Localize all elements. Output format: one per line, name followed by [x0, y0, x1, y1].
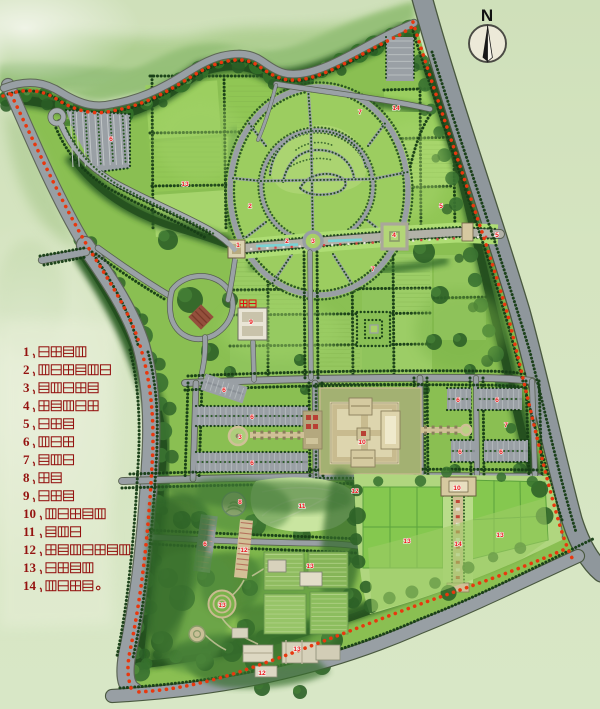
svg-text:13: 13 [403, 538, 411, 545]
svg-text:3: 3 [23, 380, 30, 395]
svg-text:4: 4 [23, 398, 30, 413]
svg-text:11: 11 [298, 503, 305, 510]
svg-text:6: 6 [499, 449, 503, 456]
svg-text:6: 6 [250, 414, 254, 421]
svg-text:10: 10 [23, 506, 36, 521]
svg-text:13: 13 [23, 560, 37, 575]
svg-text:3: 3 [311, 238, 315, 245]
svg-text:13: 13 [218, 602, 226, 609]
svg-text:9: 9 [23, 488, 30, 503]
svg-text:3: 3 [238, 434, 242, 441]
svg-text:12: 12 [23, 542, 36, 557]
svg-text:12: 12 [240, 547, 248, 554]
svg-text:7: 7 [23, 452, 30, 467]
svg-text:13: 13 [181, 181, 189, 188]
svg-text:12: 12 [351, 488, 359, 495]
svg-text:2: 2 [23, 362, 30, 377]
svg-text:14: 14 [392, 105, 400, 112]
svg-text:1: 1 [23, 344, 30, 359]
svg-text:13: 13 [293, 646, 301, 653]
svg-text:4: 4 [392, 232, 396, 239]
svg-text:6: 6 [222, 387, 226, 394]
svg-text:12: 12 [258, 670, 266, 677]
svg-text:11: 11 [23, 524, 35, 539]
svg-text:9: 9 [249, 319, 253, 326]
svg-text:N: N [481, 6, 493, 25]
svg-text:7: 7 [504, 422, 508, 429]
svg-text:8: 8 [238, 499, 242, 506]
svg-text:2: 2 [285, 238, 289, 245]
svg-text:6: 6 [495, 397, 499, 404]
svg-text:1: 1 [236, 242, 240, 249]
svg-text:10: 10 [358, 439, 366, 446]
svg-text:6: 6 [23, 434, 30, 449]
svg-text:6: 6 [250, 460, 254, 467]
svg-text:10: 10 [453, 485, 461, 492]
svg-text:8: 8 [23, 470, 30, 485]
svg-text:5: 5 [439, 203, 443, 210]
svg-text:13: 13 [496, 532, 504, 539]
svg-text:5: 5 [23, 416, 30, 431]
svg-text:2: 2 [248, 203, 252, 210]
svg-text:5: 5 [495, 232, 499, 239]
svg-text:14: 14 [454, 541, 462, 548]
svg-text:6: 6 [109, 136, 113, 143]
svg-text:7: 7 [371, 266, 375, 273]
svg-text:7: 7 [358, 109, 362, 116]
svg-text:13: 13 [306, 563, 314, 570]
svg-text:6: 6 [456, 397, 460, 404]
svg-text:14: 14 [23, 578, 37, 593]
svg-text:6: 6 [458, 449, 462, 456]
svg-text:6: 6 [203, 541, 207, 548]
